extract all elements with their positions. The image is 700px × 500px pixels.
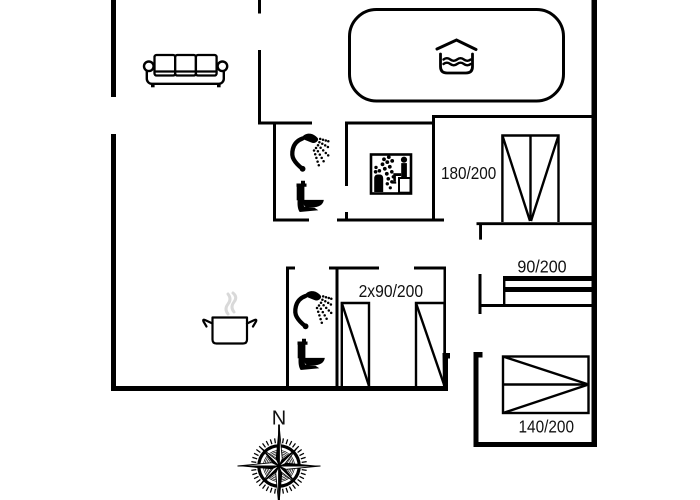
svg-text:90/200: 90/200 [517, 256, 566, 276]
svg-text:180/200: 180/200 [441, 163, 497, 183]
svg-text:2x90/200: 2x90/200 [359, 281, 424, 301]
svg-text:N: N [272, 408, 286, 430]
svg-text:140/200: 140/200 [519, 416, 575, 436]
